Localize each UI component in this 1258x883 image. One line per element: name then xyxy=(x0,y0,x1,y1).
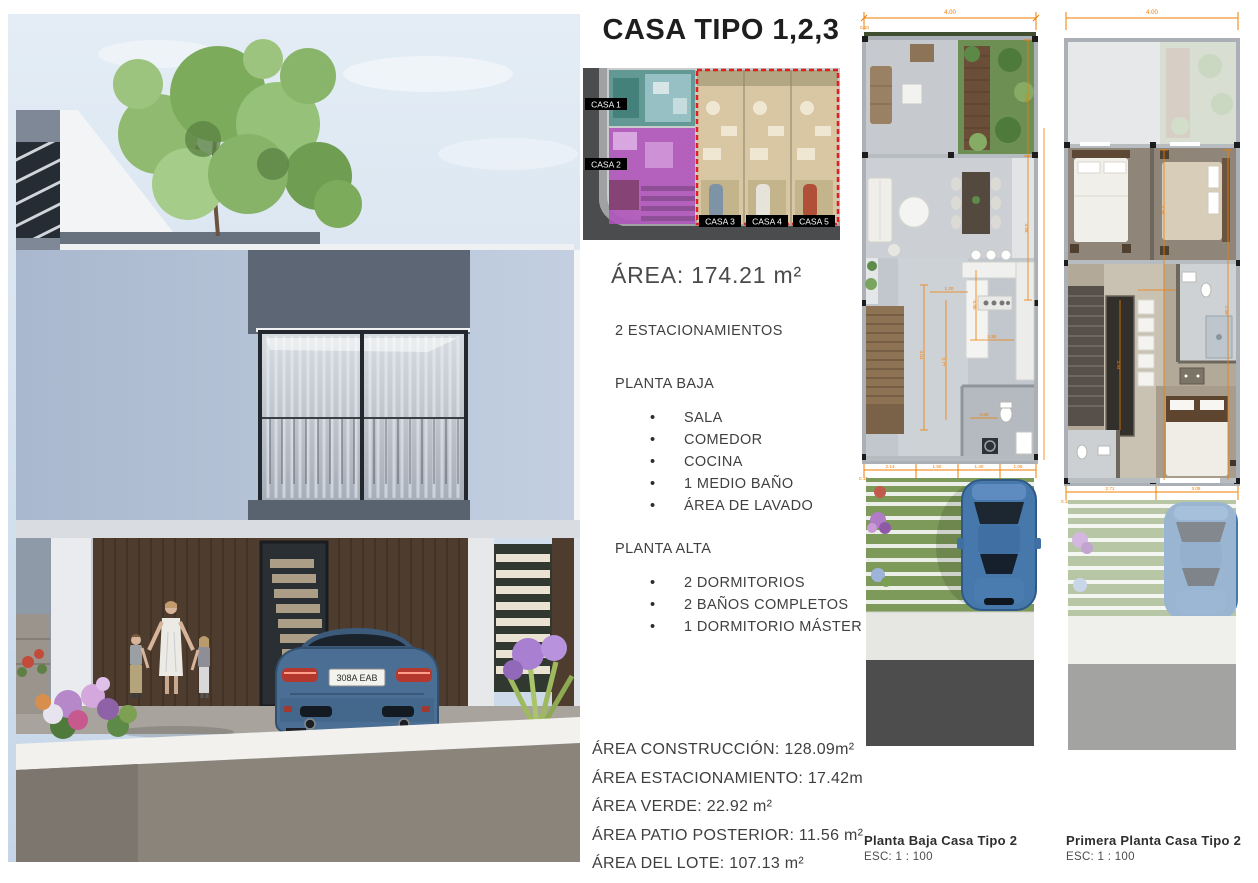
area-detail-line: ÁREA PATIO POSTERIOR: 11.56 m² xyxy=(592,822,862,851)
ghost-driveway-below xyxy=(1068,500,1238,620)
parking-count: 2 ESTACIONAMIENTOS xyxy=(615,323,783,339)
road-faded xyxy=(1068,664,1236,750)
list-item: COCINA xyxy=(648,451,813,473)
dimension-label: 2.14 xyxy=(886,464,895,469)
mini-car-2 xyxy=(756,184,770,218)
slab-beam xyxy=(16,520,580,538)
staircase-upper xyxy=(1068,286,1104,426)
ghost-patio-below xyxy=(1068,42,1236,144)
site-plan-label: CASA 1 xyxy=(591,100,621,110)
area-detail-line: ÁREA CONSTRUCCIÓN: 128.09m² xyxy=(592,736,862,765)
site-plan-label: CASA 5 xyxy=(799,217,829,227)
list-item: ÁREA DE LAVADO xyxy=(648,495,813,517)
front-wall xyxy=(866,456,1034,461)
area-details-list: ÁREA CONSTRUCCIÓN: 128.09m² ÁREA ESTACIO… xyxy=(592,736,862,879)
dimension-label: 4.00 xyxy=(944,10,956,16)
dimension-label: 0.10 xyxy=(860,25,869,30)
area-detail-line: ÁREA ESTACIONAMIENTO: 17.42m xyxy=(592,765,862,794)
bedrooms xyxy=(1068,142,1236,260)
list-item: SALA xyxy=(648,407,813,429)
window-header-panel xyxy=(248,250,470,334)
license-plate: 308A EAB xyxy=(329,669,385,686)
master-bedroom xyxy=(1156,386,1236,480)
road xyxy=(866,660,1034,746)
dimension-label: 1.06 xyxy=(1014,464,1023,469)
planta-baja-heading: PLANTA BAJA xyxy=(615,376,714,392)
license-plate-text: 308A EAB xyxy=(336,673,377,683)
patio xyxy=(866,40,1034,156)
staircase xyxy=(866,306,904,434)
foreground-wall-shadow xyxy=(16,764,138,862)
dimension-label: 1.50 xyxy=(933,464,942,469)
dimension-label: 2.71 xyxy=(1106,486,1115,491)
neighbor-building xyxy=(8,110,68,256)
mini-car-3 xyxy=(803,184,817,218)
list-item: 1 MEDIO BAÑO xyxy=(648,473,813,495)
half-bath xyxy=(962,386,1034,460)
main-window xyxy=(256,328,470,502)
site-plan-map: CASA 1 CASA 2 CASA 3 CASA 4 CASA 5 xyxy=(583,68,840,240)
planta-alta-list: 2 DORMITORIOS 2 BAÑOS COMPLETOS 1 DORMIT… xyxy=(648,572,862,638)
driveway xyxy=(866,478,1041,612)
casa2-unit xyxy=(609,128,695,224)
interior-wall-2 xyxy=(1068,260,1236,264)
dimension-label: 0.60 xyxy=(980,412,989,417)
dimension-label: 3.08 xyxy=(1192,486,1201,491)
plan1-caption: Planta Baja Casa Tipo 2 xyxy=(864,833,1017,848)
planta-baja-list: SALA COMEDOR COCINA 1 MEDIO BAÑO ÁREA DE… xyxy=(648,407,813,517)
list-item: 2 DORMITORIOS xyxy=(648,572,862,594)
bathroom-2 xyxy=(1068,430,1120,480)
dimension-label: 3.88 xyxy=(1024,224,1029,233)
sidewalk xyxy=(1068,616,1236,664)
casa345-units xyxy=(697,70,838,224)
taillight-right xyxy=(396,668,432,682)
area-detail-line: ÁREA DEL LOTE: 107.13 m² xyxy=(592,850,862,879)
dimension-label: 1.50 xyxy=(988,334,997,339)
dresser xyxy=(1180,368,1204,384)
list-item: 1 DORMITORIO MÁSTER xyxy=(648,616,862,638)
planta-alta-heading: PLANTA ALTA xyxy=(615,541,711,557)
dimension-label: 3.64 xyxy=(1024,94,1029,103)
site-plan-label: CASA 3 xyxy=(705,217,735,227)
sidewalk xyxy=(866,612,1034,660)
plan1-scale: ESC: 1 : 100 xyxy=(864,851,933,863)
page-title: CASA TIPO 1,2,3 xyxy=(590,14,852,47)
dimension-label: 1.20 xyxy=(945,286,954,291)
dimension-label: 0.90 xyxy=(972,301,977,310)
dimension-label: 2.49 xyxy=(1224,306,1229,315)
house-render: 308A EAB xyxy=(8,14,580,862)
car-top-view xyxy=(957,480,1041,610)
upper-hall-baths xyxy=(1068,264,1236,480)
dimension-label: 3.94 xyxy=(1116,361,1121,370)
floor-plan-planta-baja: 4.00 0.10 xyxy=(858,0,1050,820)
dimension-label: 4.01 xyxy=(919,351,924,360)
front-window xyxy=(1160,478,1220,483)
dimension-label: 1.40 xyxy=(975,464,984,469)
list-item: 2 BAÑOS COMPLETOS xyxy=(648,594,862,616)
dimension-label: 2.77 xyxy=(941,358,946,367)
plan2-scale: ESC: 1 : 100 xyxy=(1066,851,1135,863)
kitchen-stairs-zone xyxy=(865,250,1034,460)
mini-car-1 xyxy=(709,184,723,218)
brochure-page: { "title": "CASA TIPO 1,2,3", "site_plan… xyxy=(0,0,1258,883)
area-detail-line: ÁREA VERDE: 22.92 m² xyxy=(592,793,862,822)
area-total: ÁREA: 174.21 m² xyxy=(611,262,802,289)
taillight-left xyxy=(282,668,318,682)
dimension-lines-bottom xyxy=(1066,486,1238,500)
site-plan-label: CASA 2 xyxy=(591,160,621,170)
shelving xyxy=(1138,300,1154,386)
window-sill-panel xyxy=(248,500,470,520)
site-plan-label: CASA 4 xyxy=(752,217,782,227)
living-dining xyxy=(866,158,1034,258)
dimension-label: 4.00 xyxy=(1146,10,1158,16)
plan2-caption: Primera Planta Casa Tipo 2 xyxy=(1066,833,1241,848)
louver-screen xyxy=(494,544,552,692)
dimension-label: 4.38 xyxy=(1160,206,1165,215)
floor-plan-primera-planta: 4.00 xyxy=(1060,0,1252,820)
list-item: COMEDOR xyxy=(648,429,813,451)
